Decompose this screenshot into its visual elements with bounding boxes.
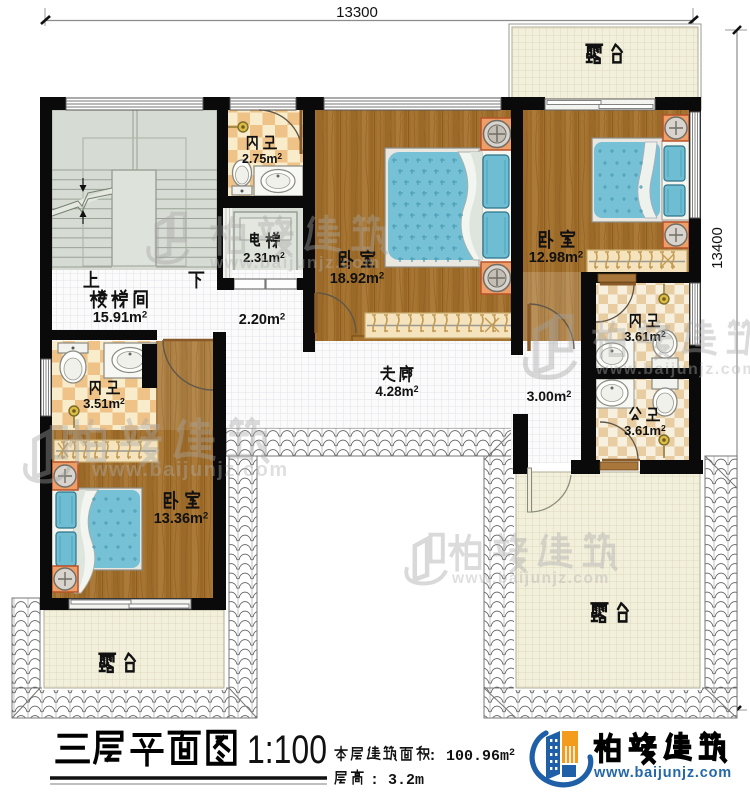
svg-text:4.28m2: 4.28m2 xyxy=(375,384,418,399)
svg-text:15.91m2: 15.91m2 xyxy=(93,310,148,326)
svg-text:www.baijunjz.com: www.baijunjz.com xyxy=(91,459,289,481)
svg-text:13.36m2: 13.36m2 xyxy=(154,511,209,527)
svg-text:2.75m2: 2.75m2 xyxy=(242,152,282,166)
svg-text:3.00m2: 3.00m2 xyxy=(527,388,572,404)
svg-text:12.98m2: 12.98m2 xyxy=(529,250,584,266)
svg-text:: 100.96m2: : 100.96m2 xyxy=(428,748,515,765)
svg-text:13300: 13300 xyxy=(336,4,378,21)
svg-text:13400: 13400 xyxy=(709,227,726,269)
svg-text:: 3.2m: : 3.2m xyxy=(370,772,424,789)
svg-text:1:100: 1:100 xyxy=(247,728,327,772)
svg-text:www.baijunjz.com: www.baijunjz.com xyxy=(209,253,381,272)
svg-text:3.61m2: 3.61m2 xyxy=(624,423,666,438)
svg-text:3.51m2: 3.51m2 xyxy=(83,396,125,411)
svg-text:18.92m2: 18.92m2 xyxy=(330,271,385,287)
svg-text:www.baijunjz.com: www.baijunjz.com xyxy=(451,570,610,587)
svg-text:www.baijunjz.com: www.baijunjz.com xyxy=(595,361,750,378)
svg-text:www.baijunjz.com: www.baijunjz.com xyxy=(593,765,732,781)
svg-text:2.20m2: 2.20m2 xyxy=(239,312,285,328)
